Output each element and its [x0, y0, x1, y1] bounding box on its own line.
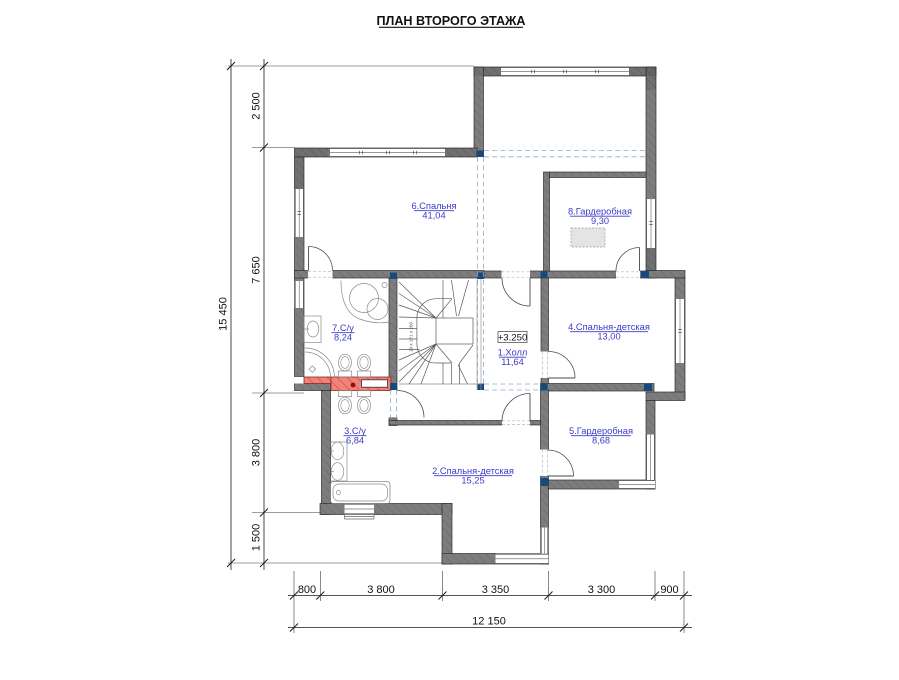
- svg-text:3 800: 3 800: [251, 439, 263, 467]
- svg-text:3 300: 3 300: [588, 584, 616, 596]
- svg-text:800: 800: [298, 584, 316, 596]
- svg-text:15 450: 15 450: [218, 297, 230, 331]
- svg-text:13,00: 13,00: [597, 331, 620, 341]
- svg-text:41,04: 41,04: [422, 210, 445, 220]
- svg-text:6,84: 6,84: [346, 435, 364, 445]
- svg-text:1 500: 1 500: [251, 524, 263, 552]
- svg-text:3 350: 3 350: [482, 584, 510, 596]
- svg-text:ПЛАН ВТОРОГО ЭТАЖА: ПЛАН ВТОРОГО ЭТАЖА: [376, 14, 525, 28]
- svg-text:8,68: 8,68: [592, 435, 610, 445]
- svg-text:2 500: 2 500: [251, 92, 263, 120]
- svg-text:3 800: 3 800: [367, 584, 395, 596]
- svg-text:+3.250: +3.250: [498, 332, 528, 343]
- svg-text:11,64: 11,64: [501, 357, 524, 367]
- svg-text:7 650: 7 650: [251, 256, 263, 284]
- svg-text:8,24: 8,24: [334, 332, 352, 342]
- svg-text:900: 900: [660, 584, 678, 596]
- svg-text:15,25: 15,25: [461, 475, 484, 485]
- svg-text:12 150: 12 150: [472, 616, 506, 628]
- svg-text:19 x 171 x 260: 19 x 171 x 260: [409, 321, 414, 352]
- svg-text:9,30: 9,30: [591, 216, 609, 226]
